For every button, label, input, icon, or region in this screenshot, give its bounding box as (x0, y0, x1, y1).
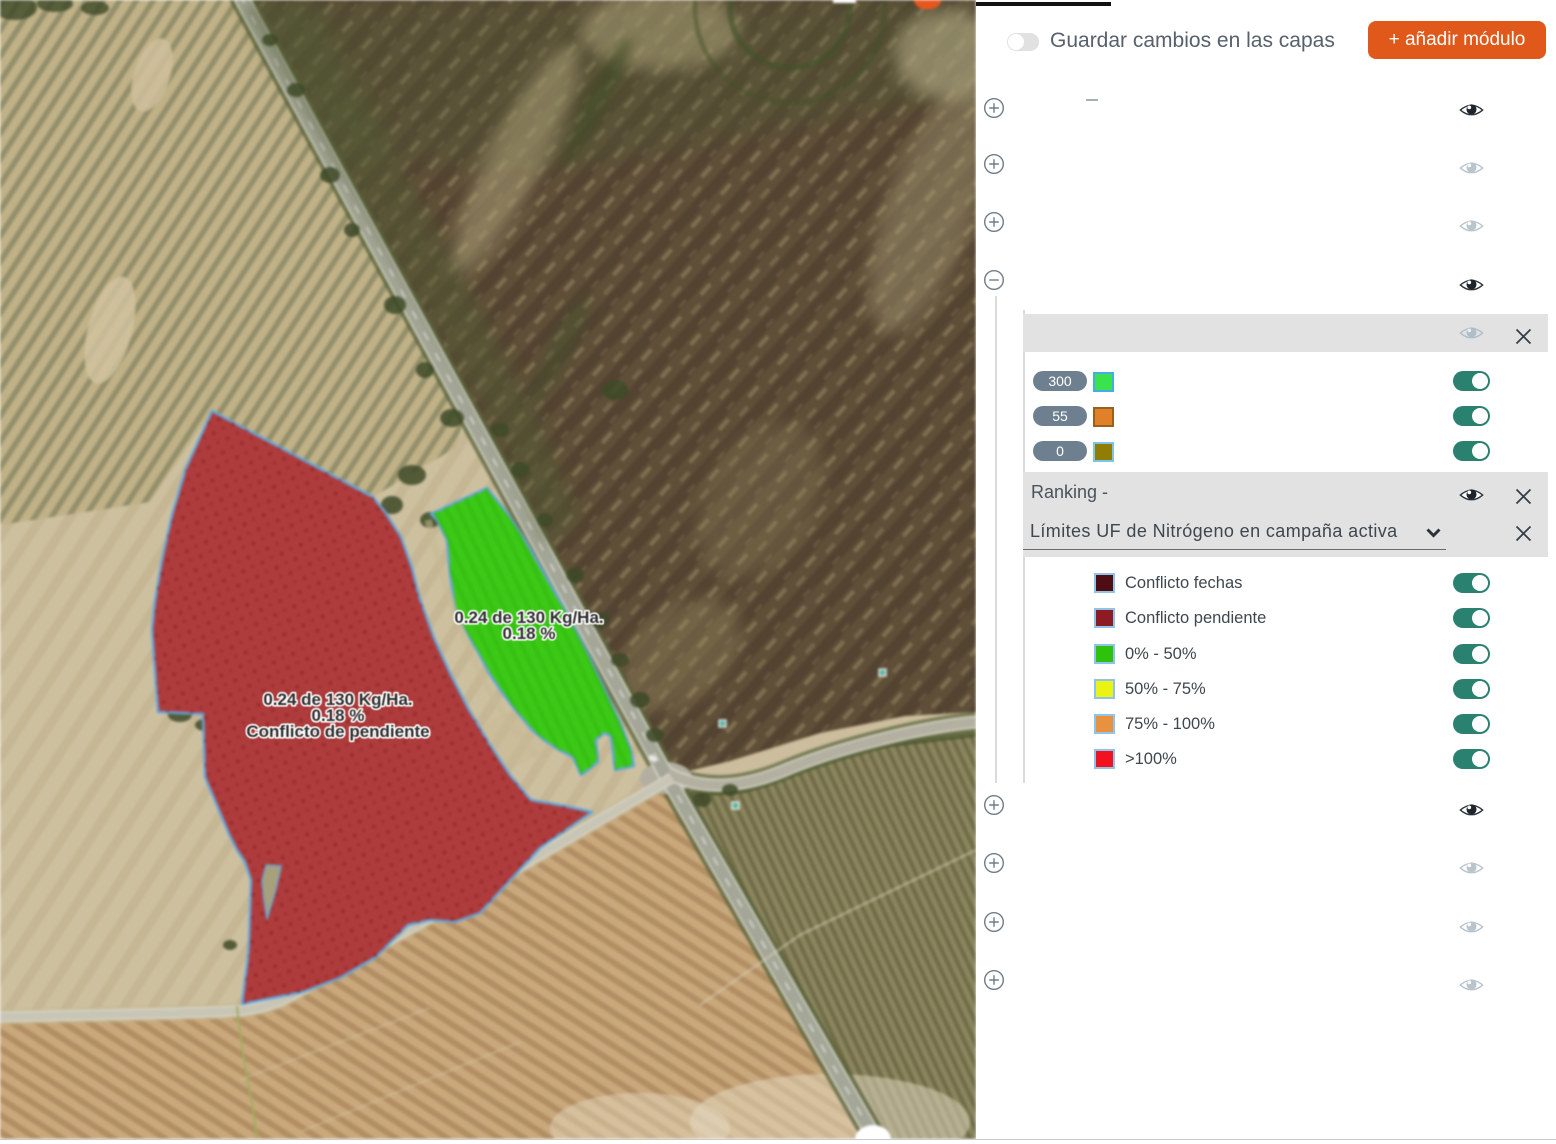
svg-text:0.18 %: 0.18 % (503, 624, 556, 643)
svg-text:Conflicto de pendiente: Conflicto de pendiente (246, 722, 429, 741)
